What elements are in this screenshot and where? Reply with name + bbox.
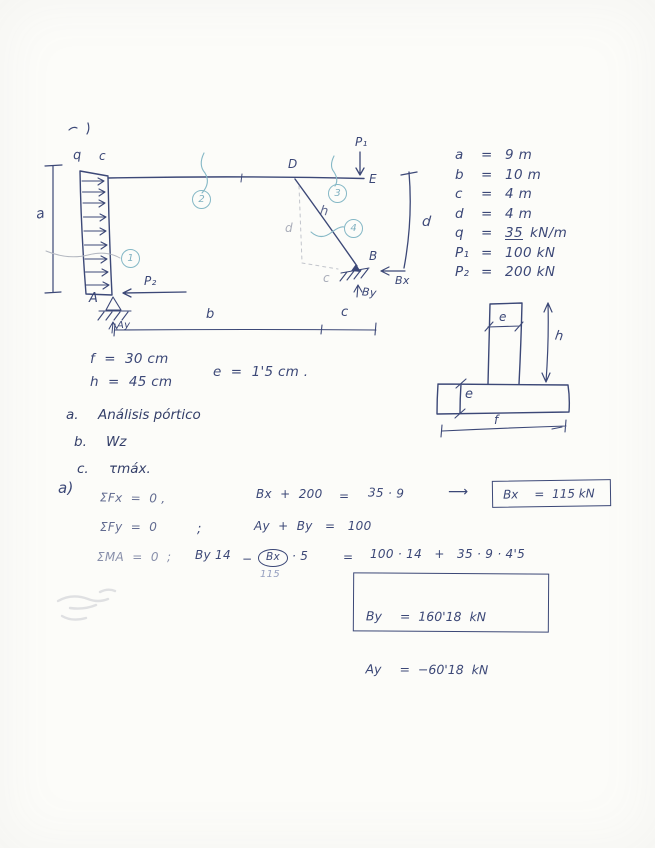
support-b-pin: [351, 264, 361, 272]
eq3-term1: By 14: [195, 549, 231, 561]
node-leaders: [201, 153, 344, 237]
load-arrow: [86, 269, 109, 276]
dim-label-d: d: [422, 215, 432, 230]
result-symbol: By: [366, 608, 400, 623]
node-label-c: c: [99, 150, 106, 162]
load-label-p2: P₂: [144, 275, 157, 287]
eq3-equals: =: [343, 551, 353, 563]
eraser-smudge: [58, 590, 115, 620]
solution-part-label: a): [58, 481, 74, 496]
given-symbol: P₂: [455, 264, 481, 280]
given-row: P₁=100 kN: [455, 245, 567, 265]
member-number-2: 2: [192, 190, 211, 209]
eq1-lhs: ΣFx = 0 ,: [100, 491, 166, 504]
eq1-expr: Bx + 200: [256, 488, 323, 500]
node-label-a: A: [89, 292, 98, 305]
load-arrow: [84, 214, 107, 221]
eq2-lhs: ΣFy = 0: [100, 521, 157, 533]
equals-sign: =: [481, 225, 505, 241]
given-symbol: c: [455, 186, 481, 202]
reaction-label-bx: Bx: [395, 275, 410, 286]
p2-arrow: [123, 289, 186, 297]
result-row: Ay= −60'18 kN: [365, 661, 547, 677]
load-arrow: [85, 242, 108, 249]
given-symbol: d: [455, 206, 481, 222]
boxed-final-results: By= 160'18 kN Ay= −60'18 kN: [353, 572, 549, 632]
reaction-label-by: By: [361, 286, 377, 298]
eq2-expr: Ay + By = 100: [254, 520, 372, 532]
implies-arrow: ⟶: [448, 485, 468, 499]
ay-arrow: [109, 322, 117, 333]
eq2-semicolon: ;: [197, 523, 202, 536]
task-list: a.Análisis pórtico b.Wz c.τmáx.: [66, 407, 201, 488]
given-row: b=10 m: [455, 167, 567, 187]
member-number-1: 1: [121, 249, 140, 268]
eq3-minus: −: [242, 553, 252, 565]
eq3-rhs: 100 · 14 + 35 · 9 · 4'5: [370, 548, 525, 560]
result-value: = 160'18 kN: [400, 609, 486, 625]
given-value: 100 kN: [505, 245, 555, 261]
dim-label-c: c: [341, 306, 348, 319]
boxed-bx-value: = 115 kN: [534, 486, 595, 501]
task-text: τmáx.: [109, 461, 151, 477]
given-value: 4 m: [505, 186, 532, 202]
stray-pen-mark: [69, 123, 89, 134]
task-id: c.: [77, 461, 109, 477]
eq3-term2: · 5: [292, 550, 308, 562]
boxed-bx-symbol: Bx: [503, 487, 519, 501]
given-row: c=4 m: [455, 186, 567, 206]
load-arrow: [85, 256, 107, 263]
eq3-circled-bx: Bx: [258, 549, 288, 567]
task-item: b.Wz: [66, 434, 201, 450]
load-label-q: q: [73, 149, 82, 162]
task-text: Wz: [106, 434, 126, 450]
node-label-b: B: [369, 250, 378, 262]
pencil-dashed-height: [299, 186, 302, 262]
member-number-3: 3: [328, 184, 347, 203]
load-arrow: [83, 189, 106, 196]
pencil-label-c: c: [323, 272, 330, 284]
equals-sign: =: [481, 186, 505, 202]
given-unit: kN/m: [530, 225, 567, 241]
load-arrow: [83, 200, 105, 207]
given-value: 35: [505, 225, 523, 241]
task-item: c.τmáx.: [66, 461, 201, 477]
p1-arrow: [356, 152, 364, 175]
section-f-dim: [441, 420, 566, 437]
section-label-e-flange: e: [465, 388, 473, 401]
task-item: a.Análisis pórtico: [66, 407, 201, 423]
given-row: a=9 m: [455, 147, 567, 167]
section-label-h: h: [554, 329, 564, 343]
leader-node2: [201, 153, 207, 193]
node-label-e: E: [369, 173, 377, 185]
section-label-f: f: [494, 414, 499, 426]
beam-tick: [241, 174, 242, 182]
task-text: Análisis pórtico: [98, 407, 201, 423]
equals-sign: =: [481, 206, 505, 222]
eq1-equals: =: [339, 490, 349, 502]
given-row: P₂=200 kN: [455, 264, 567, 284]
given-value: 9 m: [505, 147, 532, 163]
load-label-p1: P₁: [355, 136, 368, 148]
length-label-h: h: [319, 204, 329, 218]
dim-label-b: b: [206, 308, 215, 321]
beam-line: [108, 177, 364, 179]
dim-d-line: [401, 172, 417, 268]
given-row: d=4 m: [455, 206, 567, 226]
given-symbol: b: [455, 167, 481, 183]
equals-sign: =: [481, 147, 505, 163]
given-symbol: q: [455, 225, 481, 241]
result-value: = −60'18 kN: [399, 662, 488, 678]
equals-sign: =: [481, 245, 505, 261]
task-id: b.: [74, 434, 106, 450]
leader-node3: [332, 156, 337, 186]
given-row: q=35kN/m: [455, 225, 567, 245]
given-value: 10 m: [505, 167, 541, 183]
dim-value-f: f = 30 cm: [90, 353, 169, 367]
scanned-handwritten-page: q c a D P₁ E h d d B Bx By c A P₂ Ay b c…: [0, 0, 655, 848]
result-symbol: Ay: [365, 661, 399, 676]
dim-a-line: [45, 165, 62, 293]
given-symbol: a: [455, 147, 481, 163]
eq3-substituted-value: 115: [260, 570, 280, 580]
section-flange: [437, 384, 569, 414]
boxed-result-bx: Bx = 115 kN: [492, 479, 611, 508]
section-h-dim: [542, 303, 552, 382]
dim-value-e: e = 1'5 cm .: [213, 366, 308, 380]
load-block: [80, 171, 112, 295]
member-number-4: 4: [344, 219, 363, 238]
given-symbol: P₁: [455, 245, 481, 261]
given-data-list: a=9 m b=10 m c=4 m d=4 m q=35kN/m P₁=100…: [455, 147, 567, 284]
pencil-label-d: d: [285, 222, 293, 234]
given-value: 4 m: [505, 206, 532, 222]
eq3-lhs: ΣMA = 0 ;: [97, 551, 171, 563]
section-label-e-stem: e: [499, 311, 507, 323]
given-value: 200 kN: [505, 264, 555, 280]
leader-node4: [311, 227, 344, 237]
dim-bc-line: [114, 323, 376, 336]
support-a-pin: [98, 297, 131, 320]
equals-sign: =: [481, 167, 505, 183]
load-arrow: [84, 228, 106, 235]
load-arrow: [86, 282, 109, 289]
pencil-dashed-base: [302, 263, 338, 269]
task-id: a.: [66, 407, 98, 423]
result-row: By= 160'18 kN: [366, 608, 548, 624]
node-label-d: D: [288, 158, 298, 170]
equals-sign: =: [481, 264, 505, 280]
dim-value-h: h = 45 cm: [90, 376, 172, 390]
reaction-label-ay: Ay: [117, 321, 130, 331]
eq1-rhs: 35 · 9: [368, 486, 405, 499]
load-arrow: [82, 178, 104, 185]
